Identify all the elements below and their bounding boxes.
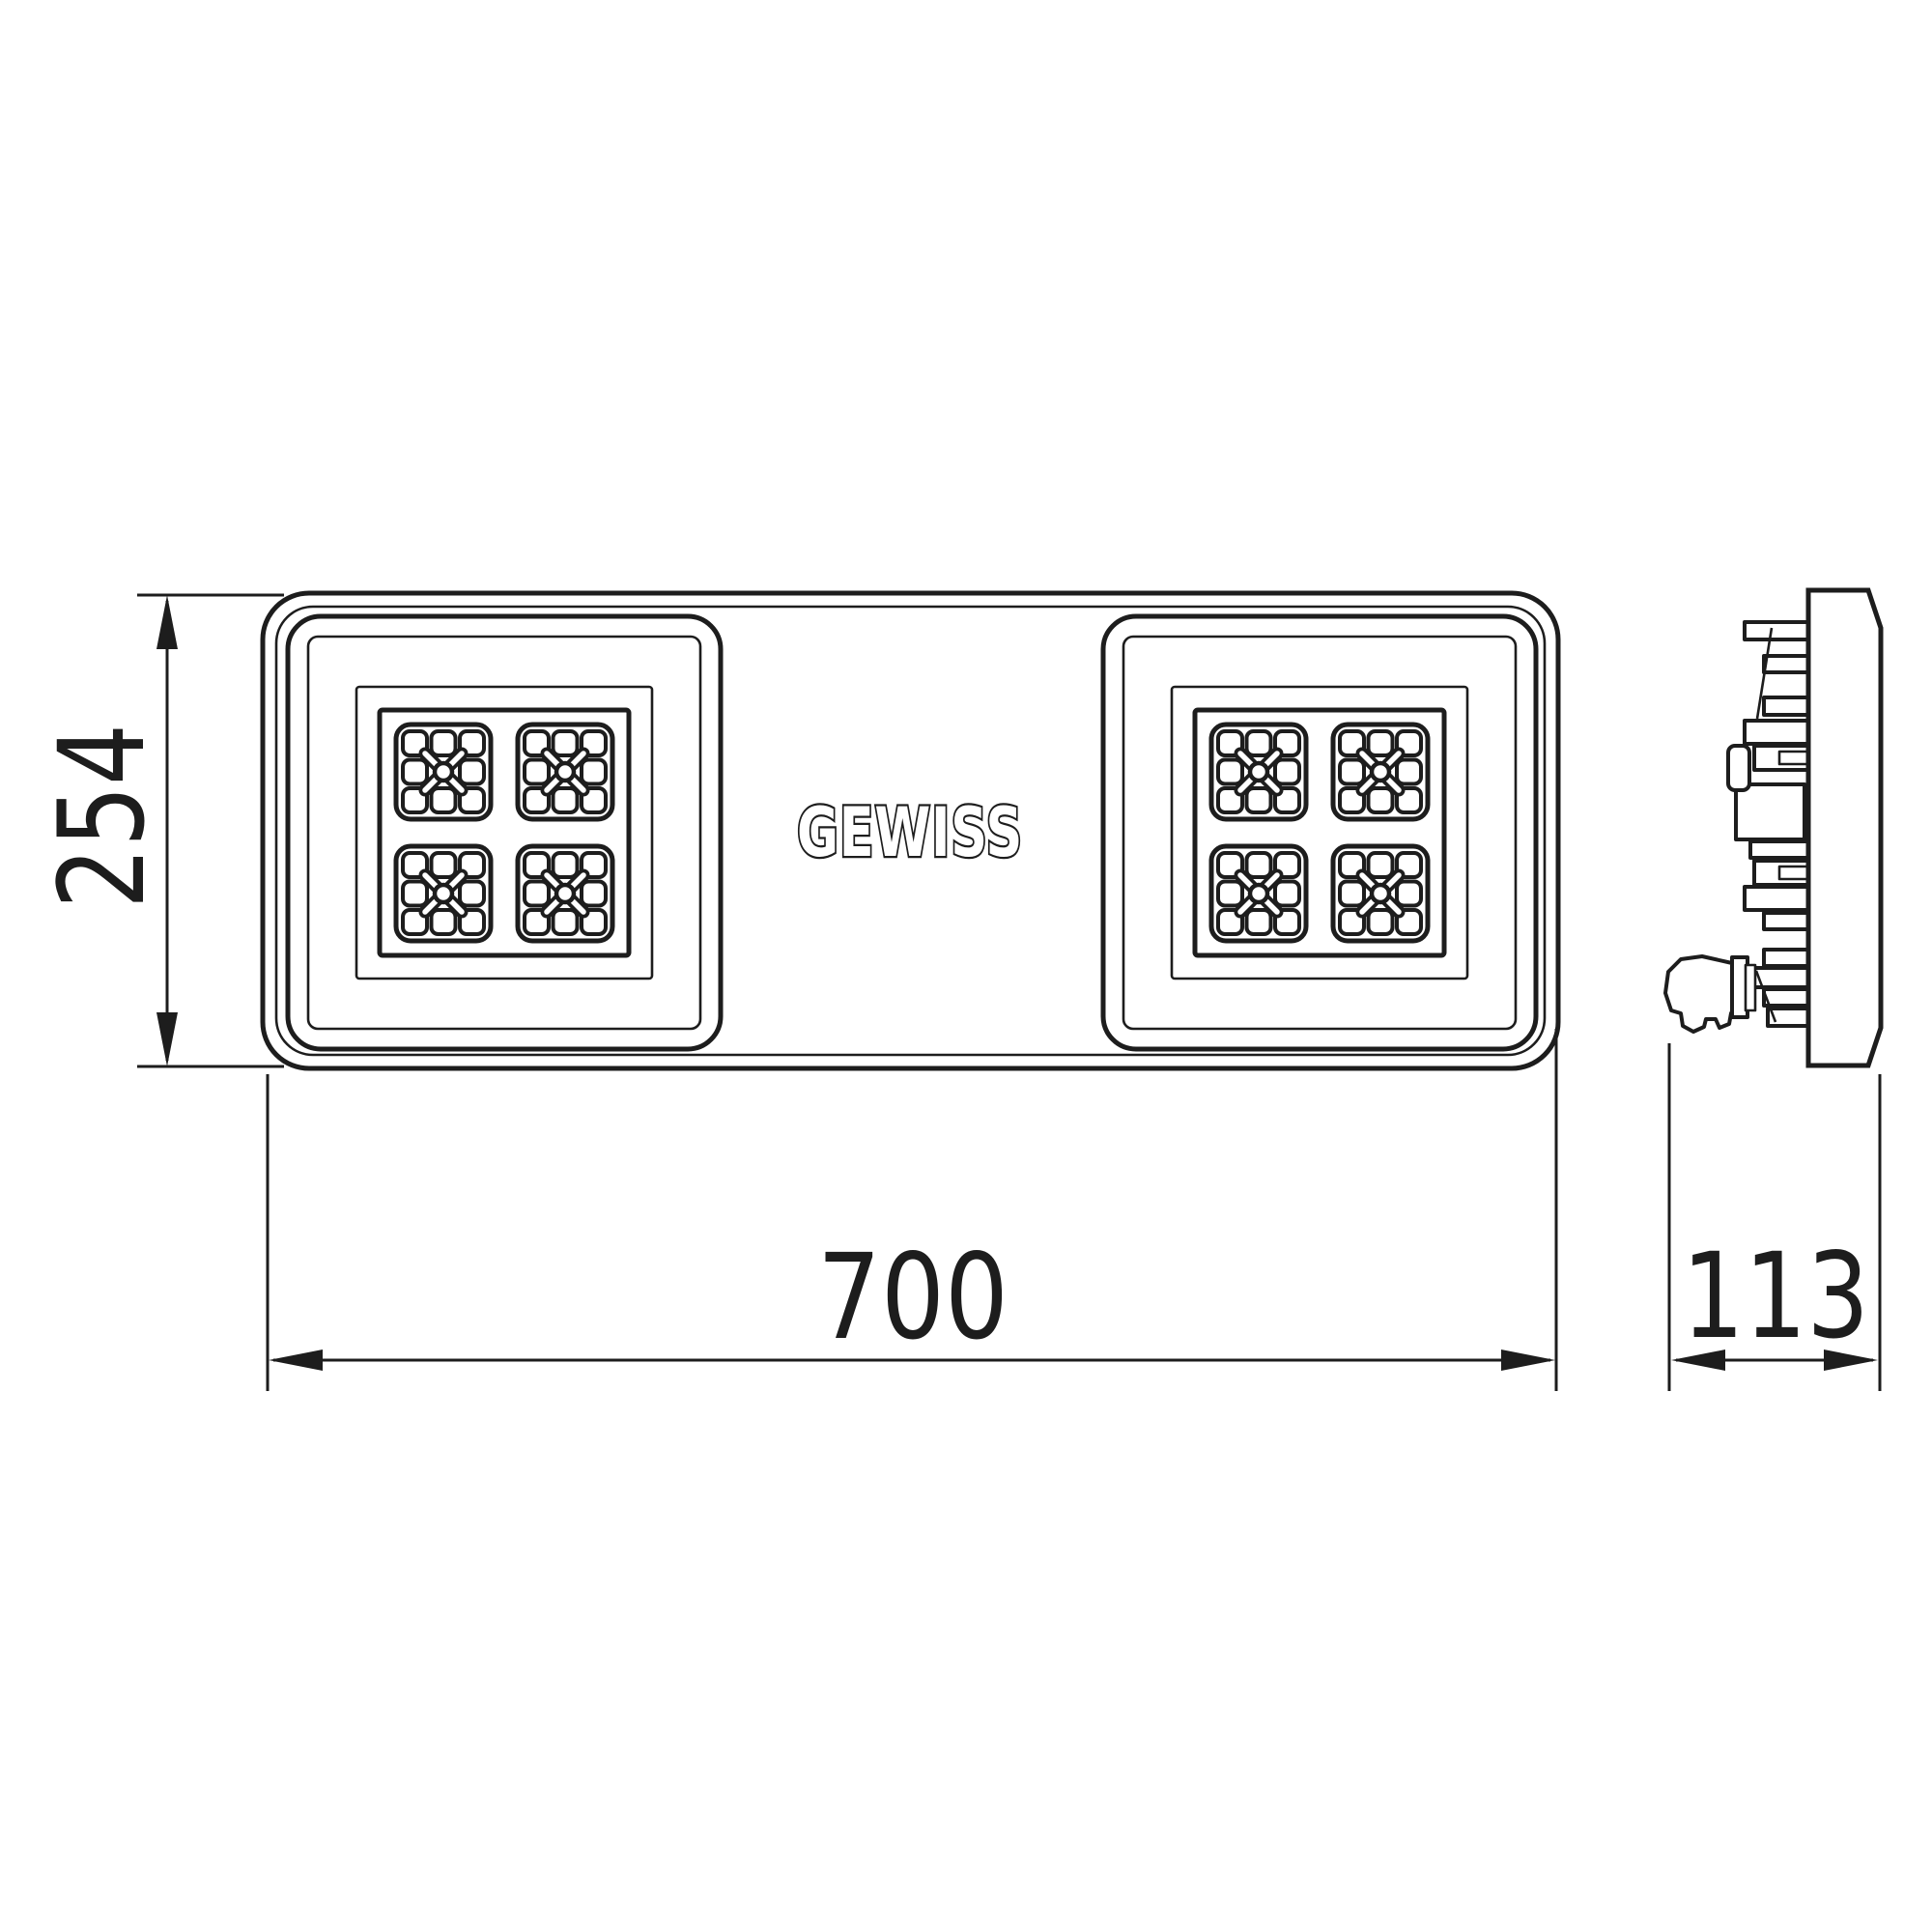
arrow-up-icon xyxy=(156,595,178,649)
dimension-depth-label: 113 xyxy=(1682,1228,1869,1365)
arrow-right-icon xyxy=(1501,1350,1555,1371)
gewiss-logo: GEWISS xyxy=(797,793,1023,872)
led-panel-right xyxy=(1103,616,1536,1049)
dimension-height: 254 xyxy=(34,595,284,1066)
arrow-down-icon xyxy=(156,1012,178,1066)
technical-drawing-canvas: GEWISS xyxy=(0,0,1932,1932)
mounting-tab xyxy=(1728,746,1749,790)
dimension-depth: 113 xyxy=(1669,1043,1880,1391)
side-view xyxy=(1665,590,1881,1065)
dimension-height-label: 254 xyxy=(34,724,171,909)
dimension-width-label: 700 xyxy=(817,1229,1009,1366)
floodlight-dimension-drawing: GEWISS xyxy=(0,0,1932,1932)
dimension-width: 700 xyxy=(268,1029,1556,1391)
front-view: GEWISS xyxy=(263,593,1558,1068)
led-panel-left xyxy=(288,616,721,1049)
arrow-left-icon xyxy=(269,1350,323,1371)
cable-gland-icon xyxy=(1665,956,1755,1032)
side-front-face xyxy=(1808,590,1881,1065)
